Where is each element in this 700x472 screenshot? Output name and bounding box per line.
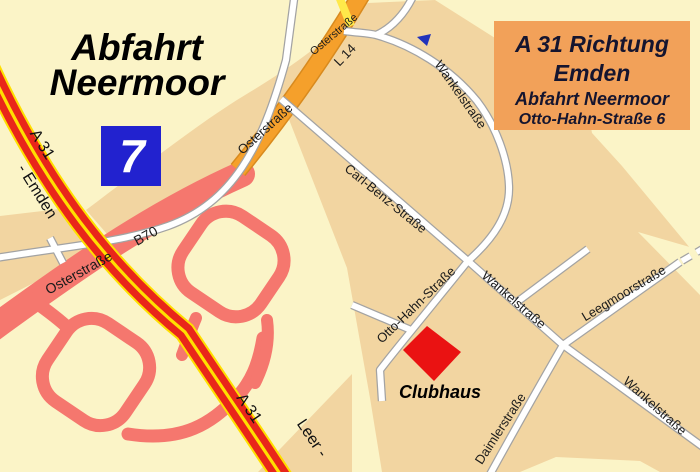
map-title: Abfahrt Neermoor [50, 27, 227, 103]
exit-sign-number: 7 [119, 130, 147, 182]
info-box-line4: Otto-Hahn-Straße 6 [519, 111, 666, 128]
map-canvas: Osterstraße L 14 Osterstraße Osterstraße… [0, 0, 700, 472]
clubhaus-label: Clubhaus [399, 382, 481, 402]
info-box: A 31 Richtung Emden Abfahrt Neermoor Ott… [494, 21, 690, 130]
info-box-line2: Emden [554, 60, 631, 86]
exit-number-sign: 7 [101, 126, 161, 186]
info-box-line1: A 31 Richtung [514, 31, 669, 57]
title-line2: Neermoor [50, 62, 227, 103]
neermoor-directions-map: Osterstraße L 14 Osterstraße Osterstraße… [0, 0, 700, 472]
info-box-line3: Abfahrt Neermoor [514, 89, 670, 109]
